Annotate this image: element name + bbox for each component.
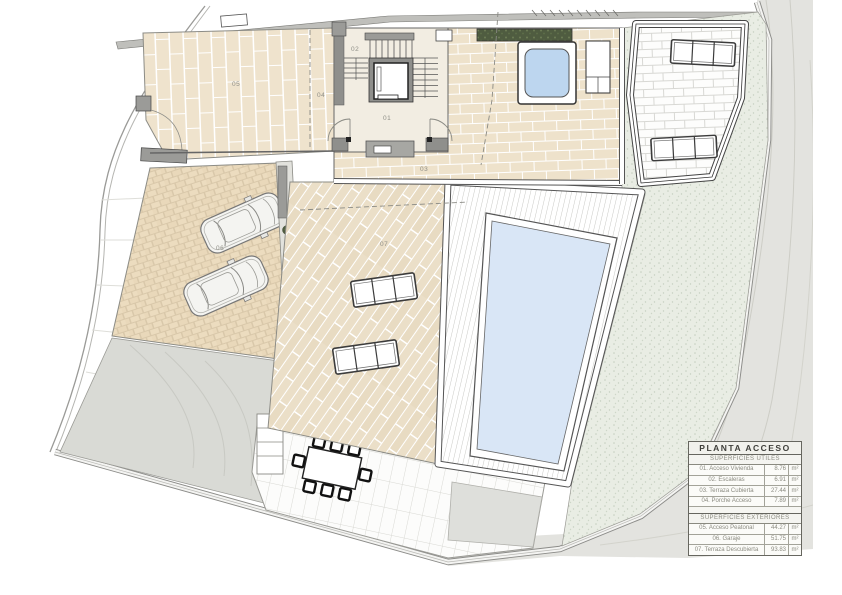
zone-label-05: 05 — [232, 81, 240, 88]
gate-wall — [141, 148, 188, 163]
floor-plan-page: 01 02 03 04 05 06 07 PLANTA ACCESO SUPER… — [0, 0, 842, 595]
driveway-ramp — [60, 338, 286, 505]
row-value: 8.76 — [764, 465, 788, 475]
legend-spacer — [689, 507, 801, 514]
jacuzzi — [518, 42, 576, 104]
legend-row: 06. Garaje 51.75 m² — [689, 535, 801, 546]
row-unit: m² — [788, 465, 801, 475]
gate-post — [136, 96, 151, 111]
row-name: 02. Escaleras — [689, 476, 764, 486]
row-name: 03. Terraza Cubierta — [689, 486, 764, 496]
zone-label-02: 02 — [351, 46, 359, 53]
row-name: 01. Acceso Vivienda — [689, 465, 764, 475]
row-unit: m² — [788, 497, 801, 507]
planter-box — [477, 29, 572, 41]
row-value: 93.83 — [764, 545, 788, 555]
row-unit: m² — [788, 545, 801, 555]
window-box — [436, 30, 452, 41]
row-value: 27.44 — [764, 486, 788, 496]
legend-row: 02. Escaleras 6.91 m² — [689, 476, 801, 487]
legend-row: 01. Acceso Vivienda 8.76 m² — [689, 465, 801, 476]
dining-chair — [338, 488, 351, 501]
row-value: 44.27 — [764, 524, 788, 534]
zone-label-07: 07 — [380, 241, 388, 248]
row-unit: m² — [788, 535, 801, 545]
row-unit: m² — [788, 476, 801, 486]
legend-title: PLANTA ACCESO — [689, 442, 801, 455]
row-value: 51.75 — [764, 535, 788, 545]
open-terrace-area — [268, 182, 448, 464]
row-name: 07. Terraza Descubierta — [689, 545, 764, 555]
dining-chair — [321, 484, 334, 497]
legend-section-exteriores: SUPERFICIES EXTERIORES — [689, 514, 801, 524]
storage-bench — [586, 41, 610, 93]
legend-table: PLANTA ACCESO SUPERFICIES ÚTILES 01. Acc… — [688, 441, 802, 556]
pedestrian-access-area — [136, 28, 334, 163]
zone-label-04: 04 — [317, 92, 325, 99]
legend-row: 05. Acceso Peatonal 44.27 m² — [689, 524, 801, 535]
garage-area — [112, 163, 290, 360]
row-name: 06. Garaje — [689, 535, 764, 545]
row-unit: m² — [788, 524, 801, 534]
row-value: 7.89 — [764, 497, 788, 507]
zone-label-01: 01 — [383, 115, 391, 122]
row-name: 05. Acceso Peatonal — [689, 524, 764, 534]
legend-row: 07. Terraza Descubierta 93.83 m² — [689, 545, 801, 555]
row-value: 6.91 — [764, 476, 788, 486]
terrace-bench-2 — [651, 135, 717, 160]
legend-section-utiles: SUPERFICIES ÚTILES — [689, 455, 801, 465]
street-marker — [221, 14, 248, 27]
dining-chair — [303, 480, 316, 493]
stair-block — [328, 22, 452, 157]
dining-chair — [292, 454, 305, 467]
row-name: 04. Porche Acceso — [689, 497, 764, 507]
zone-label-03: 03 — [420, 166, 428, 173]
legend-row: 03. Terraza Cubierta 27.44 m² — [689, 486, 801, 497]
zone-label-06: 06 — [216, 245, 224, 252]
terrace-bench-1 — [670, 40, 735, 67]
legend-row: 04. Porche Acceso 7.89 m² — [689, 497, 801, 508]
west-wall — [334, 28, 344, 105]
elevator — [369, 58, 413, 102]
dining-chair — [359, 469, 372, 482]
row-unit: m² — [788, 486, 801, 496]
